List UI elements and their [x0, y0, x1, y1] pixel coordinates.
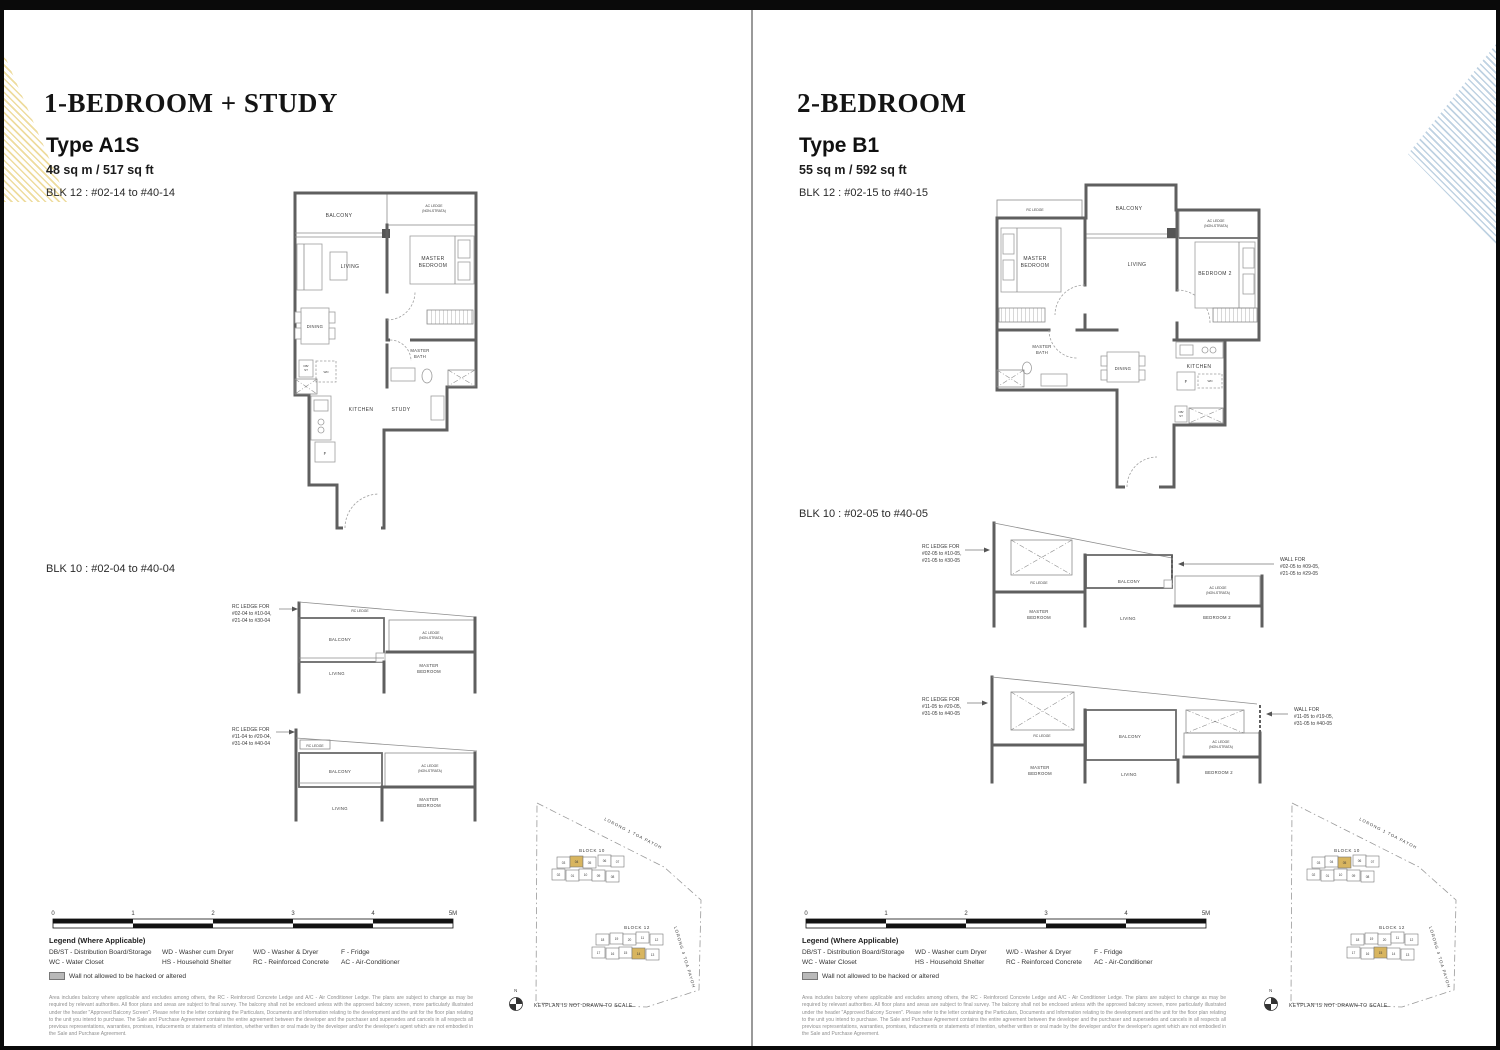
room-label-acledge: AC LEDGE — [1209, 586, 1227, 590]
north-label: N — [1269, 988, 1273, 993]
room-label-bath1: MASTER — [1032, 344, 1051, 349]
room-label-acledge: AC LEDGE — [421, 764, 439, 768]
room-label-bedroom: BEDROOM — [417, 803, 441, 808]
room-label-balcony: BALCONY — [1116, 206, 1143, 212]
legend-col1: DB/ST - Distribution Board/Storage WC - … — [49, 948, 160, 968]
annotation: #11-04 to #20-04, — [232, 734, 271, 740]
scale-tick: 3 — [291, 911, 295, 917]
label-rcledge: RC LEDGE — [351, 609, 369, 613]
keyplan-note: KEYPLAN IS NOT DRAWN TO SCALE — [1289, 1003, 1388, 1009]
svg-text:14: 14 — [1392, 952, 1396, 956]
scale-tick: 4 — [371, 911, 375, 917]
scale-tick: 3 — [1044, 911, 1048, 917]
page-divider — [751, 10, 753, 1046]
room-label-fridge: F — [1185, 379, 1188, 384]
svg-text:13: 13 — [1406, 953, 1410, 957]
svg-text:06: 06 — [1358, 859, 1362, 863]
unit-type-right: Type B1 — [799, 134, 879, 158]
walls — [299, 602, 475, 692]
room-label-acledge: AC LEDGE — [425, 204, 443, 208]
room-label-living: LIVING — [1121, 772, 1137, 777]
annotation: #11-05 to #19-05, — [1294, 714, 1333, 720]
blk10-range-right: BLK 10 : #02-05 to #40-05 — [799, 508, 928, 520]
unit-area-right: 55 sq m / 592 sq ft — [799, 163, 907, 177]
room-label-acledge2: (NON-STRATA) — [422, 209, 446, 213]
road-label-2: LORONG 4 TOA PAYOH — [673, 926, 697, 989]
room-label-living: LIVING — [332, 806, 348, 811]
disclaimer: Area includes balcony where applicable a… — [49, 995, 473, 1039]
label-rcledge: RC LEDGE — [1033, 734, 1051, 738]
svg-text:04: 04 — [575, 860, 579, 864]
label-rcledge: RC LEDGE — [1030, 581, 1048, 585]
room-label-bedroom: BEDROOM — [1021, 263, 1050, 269]
road-label-2: LORONG 4 TOA PAYOH — [1428, 926, 1452, 989]
page-title-right: 2-BEDROOM — [797, 88, 967, 119]
svg-text:06: 06 — [603, 859, 607, 863]
disclaimer: Area includes balcony where applicable a… — [802, 995, 1226, 1039]
svg-text:05: 05 — [588, 861, 592, 865]
floorplan-b1-main: RC LEDGE BALCONY AC LEDGE (NON-STRATA) M… — [989, 180, 1274, 505]
scale-tick: 4 — [1124, 911, 1128, 917]
compass-icon — [1265, 998, 1278, 1011]
svg-text:19: 19 — [615, 937, 619, 941]
annotation: #02-04 to #10-04, — [232, 611, 271, 617]
svg-text:02: 02 — [1312, 873, 1316, 877]
scale-tick: 5M — [1202, 911, 1210, 917]
room-label-dining: DINING — [307, 324, 323, 329]
room-label-acledge2: (NON-STRATA) — [1206, 591, 1230, 595]
blk12-range-right: BLK 12 : #02-15 to #40-15 — [799, 187, 928, 199]
svg-text:12: 12 — [1410, 938, 1414, 942]
floorplan-a1s-partial1: RC LEDGE FOR #02-04 to #10-04, #21-04 to… — [232, 595, 497, 695]
svg-text:01: 01 — [571, 874, 575, 878]
label-rcledge: RC LEDGE — [306, 744, 324, 748]
room-label-acledge2: (NON-STRATA) — [1209, 745, 1233, 749]
room-label-bedroom: BEDROOM — [1028, 771, 1052, 776]
legend-item: WD - Washer cum Dryer — [162, 948, 251, 958]
annotation: #31-04 to #40-04 — [232, 741, 270, 747]
floorplan-b1-partial2: RC LEDGE FOR #11-05 to #20-05, #31-05 to… — [922, 670, 1482, 785]
scale-tick: 2 — [964, 911, 968, 917]
room-label-living: LIVING — [341, 264, 360, 270]
decorative-yellow-stripes — [4, 54, 68, 202]
room-label-living: LIVING — [1120, 616, 1136, 621]
north-label: N — [514, 988, 518, 993]
annotation: WALL FOR — [1280, 557, 1306, 563]
block12-label: BLOCK 12 — [624, 925, 650, 930]
scale-tick: 0 — [804, 911, 808, 917]
svg-text:10: 10 — [1339, 873, 1343, 877]
wall-note-text: Wall not allowed to be hacked or altered — [822, 973, 939, 980]
svg-text:17: 17 — [1352, 951, 1356, 955]
wall-note: Wall not allowed to be hacked or altered — [802, 972, 1226, 980]
room-label-master: MASTER — [1023, 256, 1046, 262]
decorative-blue-stripes — [1408, 44, 1496, 244]
svg-text:02: 02 — [557, 873, 561, 877]
svg-text:08: 08 — [611, 875, 615, 879]
legend-item: F - Fridge — [341, 948, 473, 958]
legend-item: WD - Washer cum Dryer — [915, 948, 1004, 958]
room-label-kitchen: KITCHEN — [1187, 364, 1212, 370]
scale-tick: 2 — [211, 911, 215, 917]
blk10-range-left: BLK 10 : #02-04 to #40-04 — [46, 563, 175, 575]
room-label-kitchen: KITCHEN — [349, 407, 374, 413]
svg-text:15: 15 — [624, 951, 628, 955]
room-label-bath1: MASTER — [410, 348, 429, 353]
svg-text:10: 10 — [584, 873, 588, 877]
annotation: RC LEDGE FOR — [922, 544, 960, 550]
room-label-living: LIVING — [329, 671, 345, 676]
room-label-living: LIVING — [1128, 262, 1147, 268]
scale-bar: 0 1 2 3 4 5M — [802, 908, 1222, 934]
legend-col2: WD - Washer cum Dryer HS - Household She… — [162, 948, 251, 968]
room-label-acledge: AC LEDGE — [1212, 740, 1230, 744]
svg-text:15: 15 — [1379, 951, 1383, 955]
legend-item: F - Fridge — [1094, 948, 1226, 958]
room-label-acledge: AC LEDGE — [422, 631, 440, 635]
svg-text:11: 11 — [1396, 936, 1400, 940]
block10-label: BLOCK 10 — [1334, 848, 1360, 853]
svg-text:09: 09 — [1352, 874, 1356, 878]
legend-col2: WD - Washer cum Dryer HS - Household She… — [915, 948, 1004, 968]
room-label-bedroom2: BEDROOM 2 — [1203, 615, 1231, 620]
annotation: RC LEDGE FOR — [232, 727, 270, 733]
legend-col1: DB/ST - Distribution Board/Storage WC - … — [802, 948, 913, 968]
annotation: #21-05 to #29-05 — [1280, 571, 1318, 577]
room-label-bath2: BATH — [414, 354, 426, 359]
legend-title: Legend (Where Applicable) — [49, 936, 473, 945]
keyplan-note: KEYPLAN IS NOT DRAWN TO SCALE — [534, 1003, 633, 1009]
room-label-dining: DINING — [1115, 366, 1131, 371]
annotation: WALL FOR — [1294, 707, 1320, 713]
block12-label: BLOCK 12 — [1379, 925, 1405, 930]
svg-text:18: 18 — [601, 938, 605, 942]
block10-label: BLOCK 10 — [579, 848, 605, 853]
svg-text:16: 16 — [1366, 952, 1370, 956]
blk12-range-left: BLK 12 : #02-14 to #40-14 — [46, 187, 175, 199]
annotation: #11-05 to #20-05, — [922, 704, 961, 710]
room-label-acledge2: (NON-STRATA) — [418, 769, 442, 773]
legend-item: DB/ST - Distribution Board/Storage — [802, 948, 913, 958]
room-label-balcony: BALCONY — [329, 637, 351, 642]
legend-item: WC - Water Closet — [802, 958, 913, 968]
block10-units: 03 04 05 06 07 02 01 10 09 08 — [552, 855, 624, 882]
room-label-balcony: BALCONY — [329, 769, 351, 774]
annotation: #02-05 to #09-05, — [1280, 564, 1319, 570]
site-boundary — [1291, 803, 1456, 1007]
legend: Legend (Where Applicable) DB/ST - Distri… — [49, 936, 473, 980]
page-title-left: 1-BEDROOM + STUDY — [44, 88, 338, 119]
annotation: RC LEDGE FOR — [232, 604, 270, 610]
annotation: RC LEDGE FOR — [922, 697, 960, 703]
svg-text:09: 09 — [597, 874, 601, 878]
svg-text:03: 03 — [562, 861, 566, 865]
unit-area-left: 48 sq m / 517 sq ft — [46, 163, 154, 177]
legend-item: W/D - Washer & Dryer — [1006, 948, 1092, 958]
svg-text:13: 13 — [651, 953, 655, 957]
unit-type-left: Type A1S — [46, 134, 139, 158]
svg-text:07: 07 — [1371, 860, 1375, 864]
legend-item: RC - Reinforced Concrete — [253, 958, 339, 968]
svg-text:17: 17 — [597, 951, 601, 955]
annotation: #31-05 to #40-05 — [1294, 721, 1332, 727]
block10-units: 03 04 05 06 07 02 01 10 09 08 — [1307, 855, 1379, 882]
room-label-bath2: BATH — [1036, 350, 1048, 355]
block12-units: 18 19 20 11 12 17 16 15 14 13 — [592, 932, 663, 960]
room-label-master: MASTER — [1029, 609, 1048, 614]
room-label-db2: ST — [1179, 414, 1183, 418]
svg-text:14: 14 — [637, 952, 641, 956]
floorplan-a1s-partial2: RC LEDGE FOR #11-04 to #20-04, #31-04 to… — [232, 720, 497, 825]
svg-text:03: 03 — [1317, 861, 1321, 865]
road-label-1: LORONG 1 TOA PAYOH — [1359, 816, 1419, 850]
legend-item: AC - Air-Conditioner — [1094, 958, 1226, 968]
wall-swatch — [802, 972, 818, 980]
room-label-bedroom2: BEDROOM 2 — [1205, 770, 1233, 775]
room-label-bedroom: BEDROOM — [1027, 615, 1051, 620]
room-label-fridge: F — [324, 451, 327, 456]
legend-item: WC - Water Closet — [49, 958, 160, 968]
wall-swatch — [49, 972, 65, 980]
room-label-master: MASTER — [1030, 765, 1049, 770]
wall-note-text: Wall not allowed to be hacked or altered — [69, 973, 186, 980]
room-label-bedroom: BEDROOM — [417, 669, 441, 674]
annotation: #21-05 to #30-05 — [922, 558, 960, 564]
keyplan-right: LORONG 1 TOA PAYOH LORONG 4 TOA PAYOH BL… — [1259, 800, 1499, 1050]
legend-title: Legend (Where Applicable) — [802, 936, 1226, 945]
annotation: #31-05 to #40-05 — [922, 711, 960, 717]
legend: Legend (Where Applicable) DB/ST - Distri… — [802, 936, 1226, 980]
legend-item: AC - Air-Conditioner — [341, 958, 473, 968]
floorplan-b1-partial1: RC LEDGE FOR #02-05 to #10-05, #21-05 to… — [922, 518, 1482, 633]
room-label-acledge: AC LEDGE — [1207, 219, 1225, 223]
road-label-1: LORONG 1 TOA PAYOH — [604, 816, 664, 850]
svg-text:20: 20 — [628, 938, 632, 942]
room-label-bedroom2: BEDROOM 2 — [1198, 271, 1232, 277]
room-label-acledge2: (NON-STRATA) — [1204, 224, 1228, 228]
block12-units: 18 19 20 11 12 17 16 15 14 13 — [1347, 932, 1418, 960]
scale-tick: 0 — [51, 911, 55, 917]
compass-icon — [510, 998, 523, 1011]
svg-text:11: 11 — [641, 936, 645, 940]
brochure-sheet: 1-BEDROOM + STUDY Type A1S 48 sq m / 517… — [0, 0, 1500, 1050]
svg-text:08: 08 — [1366, 875, 1370, 879]
room-label-study: STUDY — [392, 407, 411, 413]
floorplan-a1s-main: BALCONY AC LEDGE (NON-STRATA) LIVING MAS… — [287, 180, 502, 545]
scale-tick: 1 — [131, 911, 135, 917]
room-label-balcony: BALCONY — [1118, 579, 1140, 584]
legend-item: HS - Household Shelter — [915, 958, 1004, 968]
room-label-master: MASTER — [419, 663, 438, 668]
annotation: #21-04 to #30-04 — [232, 618, 270, 624]
annotation: #02-05 to #10-05, — [922, 551, 961, 557]
svg-text:19: 19 — [1370, 937, 1374, 941]
svg-text:12: 12 — [655, 938, 659, 942]
legend-item: DB/ST - Distribution Board/Storage — [49, 948, 160, 958]
scale-tick: 5M — [449, 911, 457, 917]
site-boundary — [536, 803, 701, 1007]
svg-text:16: 16 — [611, 952, 615, 956]
room-label-master: MASTER — [421, 256, 444, 262]
svg-text:20: 20 — [1383, 938, 1387, 942]
legend-item: W/D - Washer & Dryer — [253, 948, 339, 958]
legend-item: RC - Reinforced Concrete — [1006, 958, 1092, 968]
svg-text:18: 18 — [1356, 938, 1360, 942]
room-label-acledge2: (NON-STRATA) — [419, 636, 443, 640]
scale-bar: 0 1 2 3 4 5M — [49, 908, 469, 934]
legend-col3: W/D - Washer & Dryer RC - Reinforced Con… — [1006, 948, 1092, 968]
room-label-db2: ST — [304, 368, 308, 372]
room-label-master: MASTER — [419, 797, 438, 802]
room-label-bedroom: BEDROOM — [419, 263, 448, 269]
svg-text:04: 04 — [1330, 860, 1334, 864]
svg-text:01: 01 — [1326, 874, 1330, 878]
scale-tick: 1 — [884, 911, 888, 917]
keyplan-left: LORONG 1 TOA PAYOH LORONG 4 TOA PAYOH BL… — [504, 800, 744, 1050]
legend-item: HS - Household Shelter — [162, 958, 251, 968]
svg-text:07: 07 — [616, 860, 620, 864]
legend-col3: W/D - Washer & Dryer RC - Reinforced Con… — [253, 948, 339, 968]
wall-note: Wall not allowed to be hacked or altered — [49, 972, 473, 980]
legend-col4: F - Fridge AC - Air-Conditioner — [1094, 948, 1226, 968]
room-label-wd: WD — [324, 370, 330, 374]
room-label-balcony: BALCONY — [1119, 734, 1141, 739]
room-label-wd: WD — [1208, 379, 1214, 383]
legend-col4: F - Fridge AC - Air-Conditioner — [341, 948, 473, 968]
svg-text:05: 05 — [1343, 861, 1347, 865]
label-rcledge: RC LEDGE — [1026, 208, 1044, 212]
room-label-balcony: BALCONY — [326, 213, 353, 219]
